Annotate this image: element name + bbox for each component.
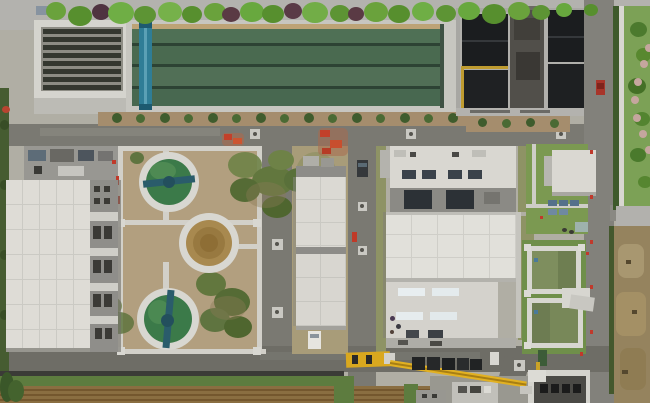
vehicles-parked-car: [412, 357, 425, 370]
center-building-red-hydrant: [352, 232, 357, 242]
right-side-pump-unit: [559, 200, 568, 206]
clusters-red-pallets: [233, 138, 242, 144]
right-complex-skylight: [468, 170, 482, 179]
garden-stone-path: [645, 146, 650, 154]
left-buildings-annex-window: [104, 260, 112, 273]
left-buildings-rooftop-unit: [78, 150, 94, 161]
center-building-rooftop-bit: [303, 156, 319, 166]
left-buildings-main-building-roof: [6, 180, 90, 352]
bottom-strip-verge-patch: [334, 376, 354, 403]
bottom-buildings-small-unit: [470, 386, 481, 393]
bottom-buildings-shed-vent: [422, 394, 427, 398]
mulch-strip-tree: [478, 118, 487, 127]
mulch-strip-tree: [526, 118, 535, 127]
right-basins-corner-pad: [578, 244, 585, 251]
vehicles-dark-car-glass: [358, 163, 367, 167]
vehicles-traffic-cone: [580, 352, 583, 356]
left-buildings-annex-window: [94, 186, 100, 192]
mulch-strip-tree: [256, 113, 266, 123]
left-buildings-annex-window: [94, 198, 100, 204]
right-complex-skylight: [402, 170, 416, 179]
right-basins-corner-pad: [524, 342, 531, 349]
bottom-buildings-shed: [416, 390, 446, 403]
trees-top-tree: [108, 2, 134, 24]
left-buildings-annex-section: [90, 283, 118, 291]
trees-top-tree: [182, 6, 202, 23]
mulch-strip-tree: [502, 119, 511, 128]
trees-top-tree: [584, 4, 598, 16]
garden-stone-path: [639, 130, 647, 138]
covered-tanks-black-panel: [462, 70, 508, 110]
bottom-buildings-roof-vent: [573, 384, 581, 393]
clusters-red-pallets: [320, 130, 330, 137]
long-basin-water-lane: [132, 29, 454, 43]
right-complex-skylight-bar: [396, 312, 423, 320]
center-building-rooftop-bit: [321, 158, 334, 167]
clusters-red-pallets: [322, 148, 331, 154]
trees-top-tree: [436, 5, 456, 22]
mulch-strip-tree: [184, 114, 193, 123]
garden-hedge: [613, 6, 619, 210]
grid-basin-lane: [43, 85, 121, 90]
garden-stone-path: [640, 60, 648, 68]
right-complex-apron-equipment: [430, 341, 442, 346]
tanks-clarifier1-hub: [163, 176, 175, 188]
left-buildings-annex-window: [105, 328, 112, 339]
trees-top-tree: [482, 4, 506, 24]
bottom-strip-grass-verge: [0, 376, 344, 386]
bottom-buildings-white-corner: [528, 370, 546, 382]
right-complex-apron-equipment: [398, 340, 408, 345]
garden-garden-pavement: [616, 206, 650, 226]
vehicles-red-car-roof: [597, 83, 604, 89]
mulch-strip-tree: [232, 114, 241, 123]
mulch-strip-tree: [550, 119, 559, 128]
vehicles-loader-arm: [536, 362, 540, 370]
right-side-lawn-path: [532, 144, 536, 208]
right-complex-rooftop-vent: [410, 152, 416, 157]
left-buildings-red-pipe: [112, 160, 116, 164]
trees-top-tree-maroon: [284, 3, 302, 19]
right-complex-rooftop-vent: [452, 152, 459, 157]
ground-manhole: [275, 310, 279, 314]
right-dirt-rubble: [616, 292, 646, 336]
garden-wall: [619, 6, 624, 210]
right-side-pump-unit: [559, 209, 568, 215]
bottom-strip-farm-field: [0, 386, 432, 403]
right-side-figure-dot: [569, 230, 574, 234]
vehicles-parked-car: [470, 359, 482, 370]
trees-top-tree: [364, 2, 388, 22]
right-complex-skylight-large: [404, 190, 432, 209]
mulch-strip-tree: [136, 114, 145, 123]
tank-area-pad: [253, 219, 261, 227]
left-buildings-annex-window: [104, 198, 110, 204]
right-dirt-debris: [622, 370, 628, 374]
clusters-red-pallets: [224, 134, 232, 140]
left-buildings-annex-section: [90, 248, 118, 256]
garden-tree: [630, 148, 646, 162]
right-basins-ladder: [534, 310, 538, 314]
ground-manhole: [517, 363, 521, 367]
garden-tree: [630, 22, 647, 37]
ground-road-wear-patch: [40, 128, 220, 136]
vehicles-white-truck: [490, 352, 499, 365]
grid-basin-lane: [43, 61, 121, 66]
left-buildings-rooftop-unit: [50, 149, 74, 162]
vehicles-parked-car: [442, 358, 455, 370]
left-buildings-annex-section: [90, 316, 118, 324]
mulch-strip-tree: [160, 113, 170, 123]
mulch-strip-tree: [112, 113, 122, 123]
long-basin-bridge-rail: [144, 28, 147, 104]
covered-tanks-center-roof-patch: [514, 18, 540, 40]
trees-top-tree: [46, 2, 66, 20]
right-complex-worker-dot: [390, 316, 395, 321]
right-basins-ladder: [534, 258, 538, 262]
center-building-south-shadow: [296, 326, 346, 330]
bottom-buildings-shed-vent: [432, 394, 437, 398]
ground-manhole: [253, 132, 257, 136]
left-buildings-annex-window: [104, 294, 112, 307]
grid-basin-lane: [43, 29, 121, 34]
ground-manhole: [360, 248, 364, 252]
trees-top-tree: [458, 2, 480, 20]
left-buildings-annex-section: [90, 212, 118, 221]
long-basin-end-walkway: [444, 24, 456, 108]
left-buildings-rooftop-unit: [28, 150, 46, 161]
right-complex-mid-unit: [484, 192, 500, 204]
grid-basin-lane: [43, 37, 121, 42]
trees-top-tree: [532, 5, 550, 20]
mulch-strip-red-flowers: [2, 106, 10, 113]
garden-stone-path: [633, 114, 641, 122]
trees-top-tree: [508, 2, 530, 20]
ground-manhole: [275, 242, 279, 246]
covered-tanks-panel-seam: [462, 40, 508, 42]
garden-stone-path: [645, 44, 650, 52]
grid-basin-lane: [43, 45, 121, 50]
bottom-buildings-roof-vent: [540, 384, 548, 393]
right-complex-upper-annex: [380, 150, 390, 178]
trees-top-tree: [158, 2, 182, 22]
right-complex-skylight-large: [446, 190, 474, 209]
mulch-strip-tree: [400, 113, 410, 123]
right-side-pump-unit: [548, 209, 557, 215]
long-basin-water-lane: [132, 46, 454, 64]
trees-top-tree: [330, 5, 350, 22]
right-complex-worker-dot: [390, 330, 394, 334]
right-side-pump-building: [552, 150, 596, 196]
right-complex-big-roof-north-edge: [386, 212, 516, 215]
left-buildings-annex-window: [95, 328, 102, 339]
right-complex-east-walk: [516, 212, 521, 338]
center-building-west-shadow: [293, 177, 296, 326]
mulch-strip-tree: [208, 113, 218, 123]
trees-top-tree: [556, 3, 572, 17]
mulch-strip-tree: [328, 114, 337, 123]
tank-area-path: [118, 349, 266, 354]
right-complex-rooftop-unit: [472, 150, 486, 157]
bottom-buildings-small-vent: [484, 386, 491, 393]
bottom-strip-bush: [8, 380, 24, 402]
right-complex-skylight: [422, 170, 436, 179]
garden-stone-path: [634, 78, 642, 86]
trees-top-tree: [134, 6, 156, 24]
covered-tanks-panel-seam: [548, 36, 584, 38]
vehicles-traffic-cone: [590, 330, 593, 334]
trees-top-tree: [68, 6, 92, 26]
grid-basin-lane: [43, 53, 121, 58]
aerial-photo-wastewater-treatment-plant: [0, 0, 650, 403]
vehicles-traffic-cone: [590, 285, 593, 289]
right-complex-big-roof: [386, 212, 516, 282]
vehicles-traffic-cone: [590, 195, 593, 199]
left-buildings-rooftop-vent: [34, 166, 42, 174]
right-side-pond: [575, 222, 588, 232]
right-complex-west-shadow: [383, 212, 386, 338]
vehicles-parked-car: [427, 357, 440, 370]
right-side-figure-dot: [562, 228, 567, 232]
right-complex-worker-dot: [396, 324, 401, 329]
tanks-clarifier2-hub: [161, 314, 174, 327]
right-dirt-rubble: [620, 348, 646, 390]
left-buildings-annex-window: [104, 226, 112, 239]
right-dirt-debris: [626, 260, 631, 264]
mulch-strip-tree: [352, 113, 362, 123]
left-buildings-rooftop-panel: [58, 166, 84, 176]
trees-top-tree: [412, 2, 434, 21]
right-complex-skylight-bar: [398, 288, 425, 296]
vehicles-traffic-cone: [590, 240, 593, 244]
bottom-buildings-roof-vent: [551, 384, 559, 393]
center-building-north-gable: [296, 166, 346, 177]
center-building-lower-roof: [296, 254, 346, 326]
vehicles-crane-stripe: [352, 355, 358, 364]
garden-stone-path: [631, 96, 639, 104]
ground-manhole: [559, 132, 563, 136]
tank-area-shrub-shadow: [210, 296, 246, 320]
right-side-pump-unit: [548, 200, 557, 206]
mulch-strip-tree: [280, 114, 289, 123]
covered-tanks-yellow-edge: [461, 66, 509, 69]
right-side-marker: [540, 216, 543, 219]
tank-area-pad: [253, 347, 261, 355]
right-complex-skylight: [448, 170, 462, 179]
garden-tree: [638, 176, 650, 188]
clusters-red-pallets: [330, 140, 342, 148]
right-dirt-hedge-line: [609, 226, 614, 394]
tank-area-path: [118, 146, 262, 151]
vehicles-parked-car: [457, 358, 469, 370]
long-basin-water-lane: [132, 67, 454, 86]
tanks-digester-center: [200, 234, 218, 252]
trees-top-tree: [262, 5, 284, 23]
right-dirt-rubble: [618, 244, 644, 278]
vehicles-traffic-cone: [590, 150, 593, 154]
covered-tanks-black-panel: [548, 64, 584, 108]
trees-top-tree-maroon: [222, 7, 240, 22]
left-buildings-annex-edge-shadow: [118, 180, 121, 352]
mulch-strip-tree: [424, 114, 433, 123]
mulch-strip-tree: [376, 114, 385, 123]
bottom-buildings-roof-vent: [562, 384, 570, 393]
right-complex-skylight-bar: [432, 288, 459, 296]
trees-top-tree: [240, 2, 264, 22]
covered-tanks-bike-rack: [470, 110, 510, 113]
long-basin-water-lane: [132, 89, 454, 106]
right-side-pump-annex: [544, 156, 552, 186]
covered-tanks-center-roof-patch: [516, 52, 540, 80]
ground-manhole: [409, 132, 413, 136]
bottom-buildings-small-unit: [458, 386, 467, 393]
right-basins-corner-pad: [524, 290, 531, 297]
covered-tanks-yellow-edge: [461, 66, 464, 110]
trees-top-tree: [388, 5, 410, 23]
long-basin-bridge-cap: [139, 104, 152, 110]
right-side-marker: [586, 252, 589, 255]
tank-area-shrub: [268, 150, 294, 170]
right-dirt-debris: [632, 310, 637, 314]
left-buildings-annex-window: [93, 226, 101, 239]
left-buildings-annex-window: [93, 260, 101, 273]
right-basins-basinA-shade: [558, 251, 576, 289]
left-edge-hedge-bush: [0, 120, 9, 130]
vehicles-van-glass: [310, 334, 319, 338]
right-side-pump-unit: [570, 200, 579, 206]
right-basins-basinB-shade: [532, 303, 550, 343]
vehicles-boom-tip-pad: [520, 386, 532, 394]
right-complex-skylight-bar: [430, 312, 457, 320]
left-buildings-main-building-shadow: [6, 348, 90, 352]
left-buildings-annex-window: [93, 294, 101, 307]
grid-basin-lane: [43, 69, 121, 74]
trees-top-tree-maroon: [348, 7, 364, 21]
mulch-strip-tree: [304, 113, 314, 123]
left-buildings-annex-window: [104, 186, 110, 192]
vehicles-crane-stripe: [366, 355, 372, 364]
right-basins-corner-pad: [524, 244, 531, 251]
trees-top-tree: [302, 2, 328, 23]
grid-basin-lane: [43, 77, 121, 82]
right-complex-rooftop-unit: [394, 150, 406, 157]
center-building-upper-roof: [296, 177, 346, 247]
center-building-mid-gable: [296, 247, 346, 254]
ground-manhole: [360, 204, 364, 208]
tank-area-shrub-shadow: [246, 182, 286, 208]
left-buildings-rooftop-unit: [98, 151, 113, 161]
covered-tanks-bike-rack: [520, 110, 550, 113]
tank-area-shrub: [130, 152, 144, 164]
